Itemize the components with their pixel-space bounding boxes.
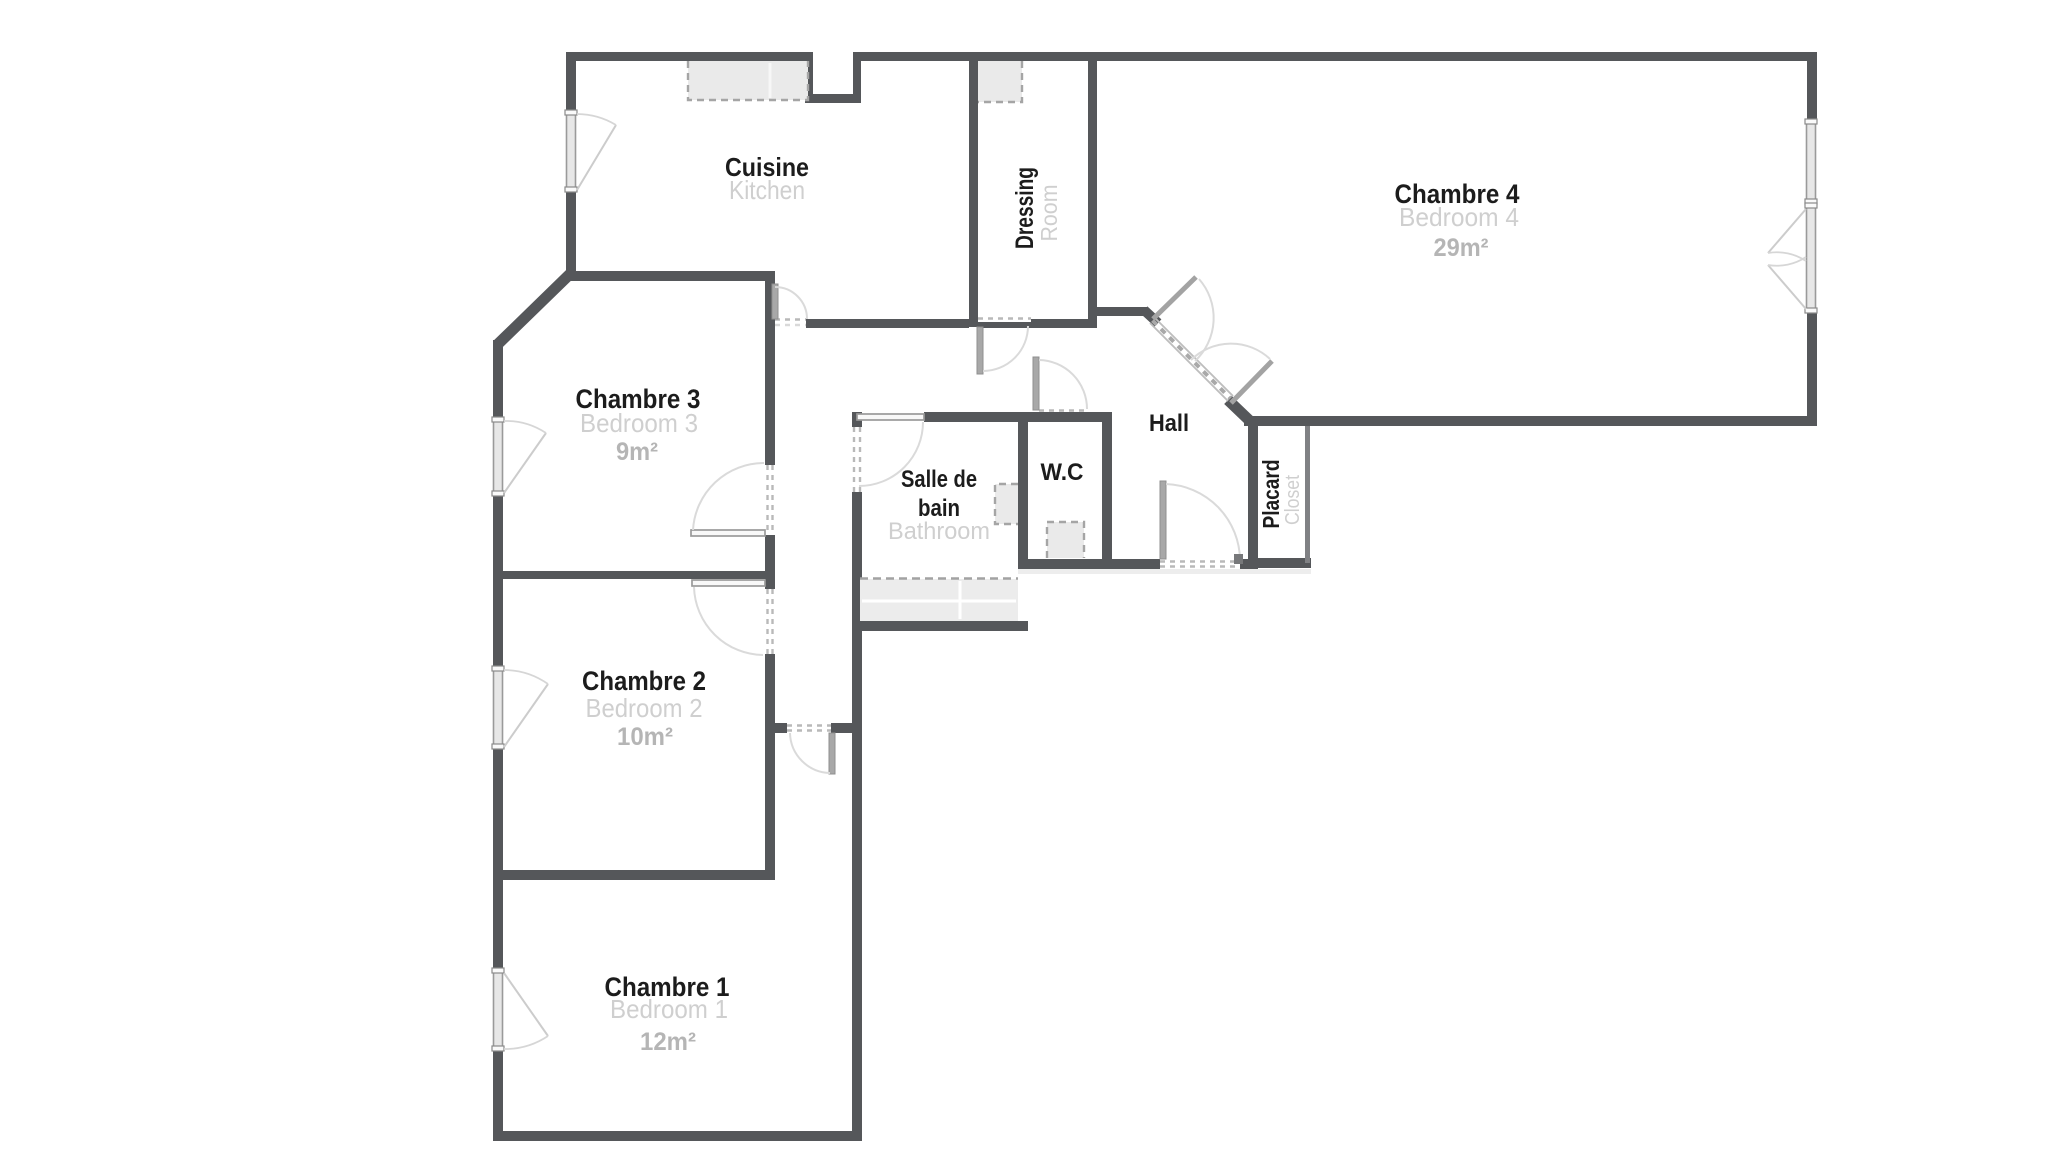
- svg-text:Room: Room: [1036, 185, 1062, 242]
- svg-text:Bathroom: Bathroom: [888, 518, 990, 545]
- svg-text:9m²: 9m²: [616, 438, 658, 466]
- svg-text:Placard: Placard: [1258, 460, 1284, 529]
- svg-text:W.C: W.C: [1041, 459, 1084, 486]
- svg-text:Hall: Hall: [1149, 410, 1189, 437]
- svg-text:12m²: 12m²: [640, 1028, 696, 1056]
- svg-text:Bedroom 1: Bedroom 1: [610, 994, 728, 1024]
- svg-text:Dressing: Dressing: [1011, 167, 1039, 249]
- svg-text:Bedroom 2: Bedroom 2: [586, 693, 703, 723]
- svg-text:Bedroom 4: Bedroom 4: [1399, 202, 1519, 232]
- svg-text:Salle de: Salle de: [901, 466, 977, 493]
- svg-text:29m²: 29m²: [1434, 234, 1489, 262]
- svg-text:Kitchen: Kitchen: [729, 175, 805, 205]
- svg-text:Closet: Closet: [1282, 475, 1304, 525]
- svg-text:Bedroom 3: Bedroom 3: [580, 408, 698, 438]
- svg-text:10m²: 10m²: [617, 723, 673, 751]
- svg-text:Chambre 2: Chambre 2: [582, 666, 706, 696]
